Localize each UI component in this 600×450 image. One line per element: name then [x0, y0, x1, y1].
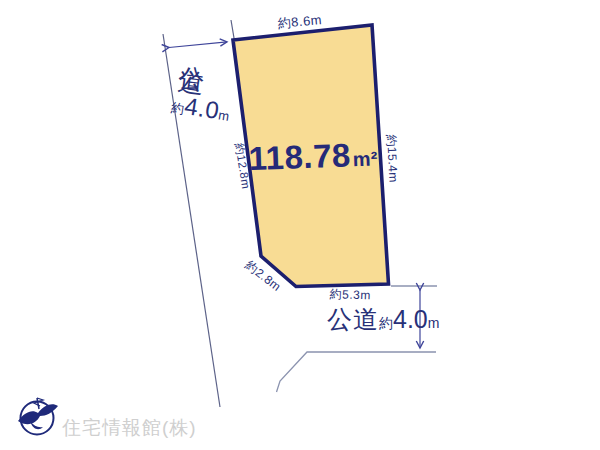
bottom-road-width-unit: m	[428, 315, 440, 331]
bottom-road-name: 公道	[327, 303, 379, 336]
parcel-area-label: 118.78 m²	[248, 136, 378, 178]
dimension-bottom-label: 約5.3m	[329, 286, 371, 304]
bottom-road-label: 公道 約 4.0 m	[327, 303, 439, 336]
parcel-area-value: 118.78	[248, 136, 351, 178]
company-logo-icon	[18, 398, 58, 435]
left-road-width-value: 4.0	[182, 92, 221, 125]
dimension-top-label: 約8.6m	[277, 11, 323, 33]
bottom-road-far-line	[277, 352, 437, 392]
diagram-canvas	[0, 0, 600, 450]
left-road-boundary-line	[163, 34, 220, 407]
company-watermark: 住宅情報館(株)	[62, 415, 197, 441]
left-road-width-unit: m	[217, 107, 230, 124]
bottom-road-width-prefix: 約	[379, 315, 393, 333]
bottom-road-width-value: 4.0	[393, 305, 428, 334]
land-plot-diagram: 約8.6m 約15.4m 約12.8m 約2.8m 約5.3m 118.78 m…	[0, 0, 600, 450]
parcel-area-unit: m²	[352, 148, 377, 172]
dimension-right-label: 約15.4m	[382, 134, 402, 183]
